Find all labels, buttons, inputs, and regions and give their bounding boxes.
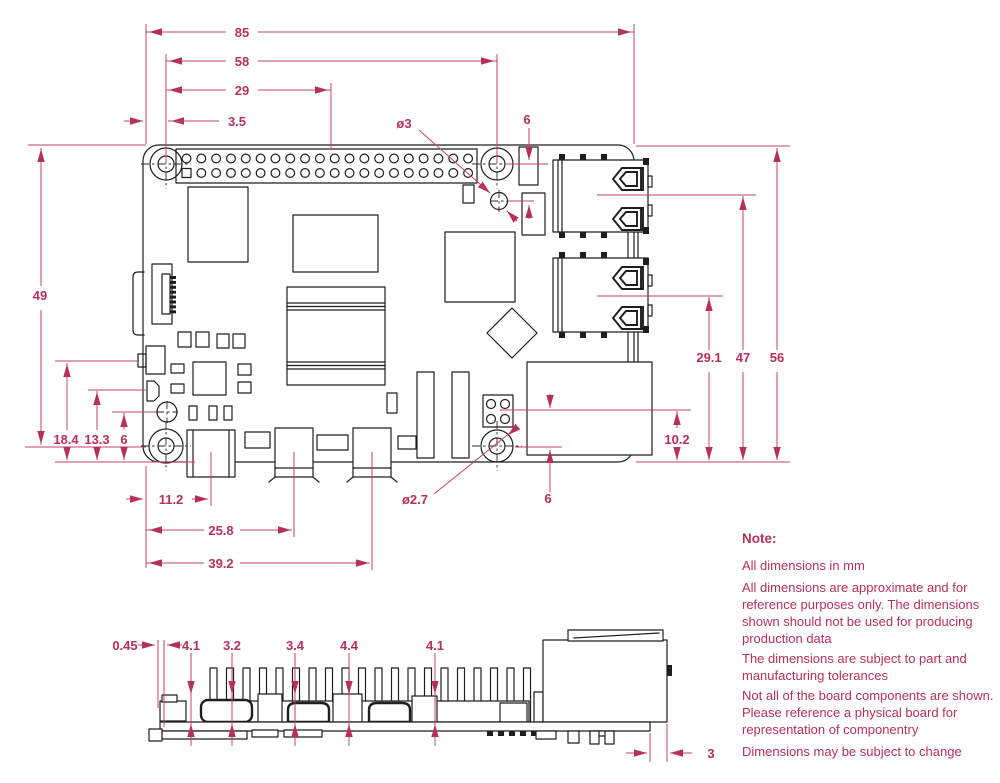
dim-side-e: 4.4: [340, 638, 359, 653]
dim-usb-upper: 47: [736, 350, 750, 365]
chip-c: [445, 232, 515, 302]
top-view-board: [133, 139, 652, 482]
dim-side-d: 3.4: [286, 638, 305, 653]
dim-hole-pitch-y: 49: [33, 288, 47, 303]
micro-hdmi-0-side: [288, 703, 329, 722]
micro-hdmi-1-side: [369, 703, 410, 722]
chip-a: [188, 187, 248, 262]
dimension-lines: [25, 24, 790, 762]
note-line: Not all of the board components are show…: [742, 688, 993, 703]
poe-header: [483, 395, 513, 427]
power-button: [138, 346, 165, 374]
note-line: production data: [742, 631, 832, 646]
dim-hdmi1-center: 39.2: [208, 556, 233, 571]
dim-poe-offset: 6: [544, 491, 551, 506]
dim-edge-to-hole: 3.5: [228, 114, 246, 129]
dim-hole-offset-top: 6: [523, 112, 530, 127]
dim-comp-a: 18.4: [53, 432, 79, 447]
fpc-connector-1: [417, 372, 434, 458]
dimension-labels: 85 58 29 3.5 ø3 6 56 47 29.1 10.2 49 18.…: [33, 25, 784, 761]
dim-board-width: 85: [235, 25, 249, 40]
pcb-side: [160, 722, 650, 731]
small-components: [171, 147, 545, 420]
wedge-component: [147, 381, 159, 401]
ethernet-jack: [527, 362, 652, 455]
chip-d: [193, 362, 226, 395]
mounting-holes: [141, 139, 522, 471]
dim-board-height: 56: [770, 350, 784, 365]
note-line: All dimensions in mm: [742, 558, 865, 573]
note-line: Please reference a physical board for: [742, 705, 958, 720]
sd-card-side: [162, 731, 247, 739]
dim-side-f: 4.1: [426, 638, 444, 653]
gpio-pin1-square: [182, 169, 191, 178]
note-line: All dimensions are approximate and for: [742, 580, 968, 595]
usb-stack-lower: [553, 252, 652, 338]
note-line: The dimensions are subject to part and: [742, 651, 967, 666]
usb-stack-upper: [553, 154, 652, 238]
dim-eth-overhang: 3: [707, 746, 714, 761]
dim-side-c: 3.2: [223, 638, 241, 653]
note-line: manufacturing tolerances: [742, 668, 888, 683]
dim-hole-offset-left: 6: [120, 432, 127, 447]
dim-hole-dia-bottom: ø2.7: [402, 492, 428, 507]
mechanical-drawing-page: 85 58 29 3.5 ø3 6 56 47 29.1 10.2 49 18.…: [0, 0, 1000, 783]
note-line: shown should not be used for producing: [742, 614, 973, 629]
usb-c-side: [201, 700, 252, 722]
dim-usb-lower: 29.1: [696, 350, 721, 365]
board-mechanical-drawing: 85 58 29 3.5 ø3 6 56 47 29.1 10.2 49 18.…: [0, 0, 1000, 783]
diamond-chip: [487, 308, 537, 358]
notes-block: Note: All dimensions in mm All dimension…: [742, 531, 993, 759]
chip-b: [293, 215, 378, 272]
note-line: representation of componentry: [742, 722, 919, 737]
fpc-connector-2: [452, 372, 469, 458]
dim-comp-b: 13.3: [84, 432, 109, 447]
dim-side-a: 0.45: [112, 638, 137, 653]
dim-hole-pitch-x: 58: [235, 54, 249, 69]
dim-eth-center: 10.2: [664, 432, 689, 447]
dim-usbc-center: 11.2: [159, 492, 184, 507]
soc-chip: [287, 287, 385, 385]
note-line: reference purposes only. The dimensions: [742, 597, 980, 612]
notes-heading: Note:: [742, 531, 777, 546]
left-edge-connector: [133, 264, 176, 335]
note-line: Dimensions may be subject to change: [742, 744, 962, 759]
dim-hole-dia-top: ø3: [396, 116, 411, 131]
ethernet-side: [543, 630, 672, 722]
dim-hdmi0-center: 25.8: [208, 523, 233, 538]
dim-side-b: 4.1: [182, 638, 200, 653]
gpio-header: [176, 149, 477, 183]
dim-gpio-center: 29: [235, 83, 249, 98]
